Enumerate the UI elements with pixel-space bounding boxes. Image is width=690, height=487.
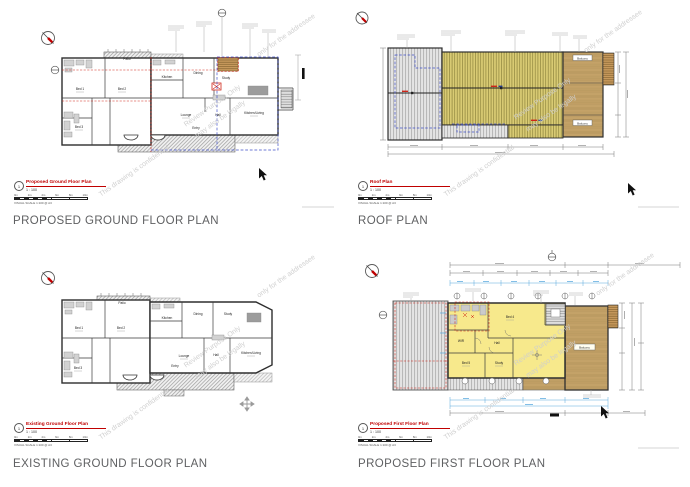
svg-text:Bed 2: Bed 2 [117,326,126,330]
scale-bar: 0m2m4m6m8m10m [14,436,88,442]
visual-scale-note: VISUAL SCALE 1:100 @ A3 [358,201,450,205]
scale-bar: 0m2m4m6m8m10m [358,436,432,442]
svg-text:Entry: Entry [192,126,200,130]
view-title-block: 1 Proposed Ground Floor Plan 1 : 100 0m2… [14,180,106,205]
north-arrow-icon [42,32,55,45]
balcony-label-top: Balcony [573,55,592,61]
svg-text:Hall: Hall [213,353,219,357]
scale-marker [550,414,559,417]
scale-tick: 2m [28,194,32,197]
scale-tick: 8m [69,436,73,439]
panel-proposed-ground-floor-plan: Bed 1 Bed 2 Bed 3 Kitchen Dining Study L… [0,0,345,243]
balcony-label: Balcony [574,344,595,350]
scale-tick: 4m [41,194,45,197]
scale-tick: 6m [55,194,59,197]
visual-scale-note: VISUAL SCALE 1:100 @ A3 [14,443,106,447]
visual-scale-note: VISUAL SCALE 1:100 @ A3 [14,201,106,205]
view-title-block: 1 Existing Ground Floor Plan 1 : 100 0m2… [14,422,106,447]
svg-text:Bed 4: Bed 4 [506,315,515,319]
scale-tick: 2m [372,194,376,197]
view-number-bubble: 1 [14,423,24,433]
scale-tick: 6m [399,436,403,439]
svg-text:Bed 5: Bed 5 [462,361,471,365]
scale-tick: 10m [83,436,88,439]
svg-text:Balcony: Balcony [577,121,588,125]
caption-proposed-first-floor-plan: PROPOSED FIRST FLOOR PLAN [358,458,545,470]
svg-text:Bed 3: Bed 3 [74,366,83,370]
proposed-ground-floor-plan-drawing: Bed 1 Bed 2 Bed 3 Kitchen Dining Study L… [0,0,345,243]
stair-hatch [603,53,614,85]
svg-text:Balcony: Balcony [579,346,590,350]
section-marker-icon [51,66,59,74]
veranda-hatch [234,373,272,382]
scale-marker [302,68,305,79]
dimension-lines-bottom [450,410,645,416]
scale-bar: 0m2m4m6m8m10m [14,194,88,200]
roof-below-area [448,378,523,390]
svg-text:Bed 2: Bed 2 [118,87,127,91]
svg-text:Hall: Hall [494,341,500,345]
ridge-node [500,87,502,89]
stair-hatch [608,305,618,328]
new-roof-area [442,52,563,125]
svg-text:Dining: Dining [193,71,202,75]
svg-text:Patio: Patio [123,57,130,61]
section-marker-icon [548,250,556,261]
scale-tick: 10m [427,436,432,439]
view-scale: 1 : 100 [370,186,450,192]
svg-text:Lounge: Lounge [181,113,192,117]
roof-plan-drawing: Balcony Balcony [345,0,690,243]
move-cursor [240,397,254,411]
scale-tick: 10m [427,194,432,197]
house-right-wing [150,302,272,373]
view-scale: 1 : 100 [370,428,450,434]
scale-tick: 0m [14,194,18,197]
pergola-posts [108,49,148,52]
grid-bubbles [454,293,595,299]
dimension-lines [295,55,301,100]
dimension-lines-blue-top [450,280,608,286]
pergola-posts [101,293,141,296]
north-arrow-icon [366,265,379,278]
proposed-first-floor-plan-drawing: Balcony Bed 4 WIR Hall Bed 5 Study [345,243,690,487]
view-number-bubble: 1 [358,423,368,433]
scale-tick: 6m [399,194,403,197]
scale-tick: 6m [55,436,59,439]
new-roof-area [508,125,563,138]
scale-tick: 8m [413,194,417,197]
caption-proposed-ground-floor-plan: PROPOSED GROUND FLOOR PLAN [13,215,219,227]
visual-scale-note: VISUAL SCALE 1:100 @ A3 [358,443,450,447]
scale-bar: 0m2m4m6m8m10m [358,194,432,200]
section-marker-icon [379,311,387,319]
svg-text:Balcony: Balcony [577,56,588,60]
scale-tick: 10m [83,194,88,197]
stair-landing [551,309,560,317]
svg-text:Kitchen: Kitchen [162,75,173,79]
caption-existing-ground-floor-plan: EXISTING GROUND FLOOR PLAN [13,458,207,470]
balcony-label-bottom: Balcony [573,120,592,126]
view-scale: 1 : 100 [26,428,106,434]
existing-roof-area [442,125,508,138]
view-number-bubble: 1 [14,181,24,191]
svg-text:Lounge: Lounge [179,354,190,358]
svg-text:Dining: Dining [193,312,202,316]
dimension-lines-top [450,262,680,276]
scale-tick: 0m [14,436,18,439]
dimension-lines-blue-bottom [450,397,608,409]
view-title-block: 1 Roof Plan 1 : 100 0m2m4m6m8m10m VISUAL… [358,180,450,205]
view-scale: 1 : 100 [26,186,106,192]
section-marker-icon [218,9,226,56]
svg-text:WIR: WIR [458,339,465,343]
dimension-text-mimic [625,311,635,346]
ridge-node [411,92,413,94]
north-arrow-icon [356,12,368,24]
svg-text:Bed 1: Bed 1 [76,87,85,91]
view-title-block: 1 Proposed First Floor Plan 1 : 100 0m2m… [358,422,450,447]
scale-tick: 4m [385,194,389,197]
mouse-cursor [628,183,636,196]
panel-roof-plan: Balcony Balcony This drawing is confiden… [345,0,690,243]
svg-text:Bed 1: Bed 1 [75,326,84,330]
scale-tick: 2m [372,436,376,439]
stair-hatch [281,90,292,108]
svg-text:Study: Study [224,312,233,316]
scale-tick: 4m [41,436,45,439]
svg-text:Study: Study [495,361,504,365]
scale-tick: 8m [413,436,417,439]
svg-text:Entry: Entry [171,364,179,368]
scale-tick: 0m [358,194,362,197]
panel-proposed-first-floor-plan: Balcony Bed 4 WIR Hall Bed 5 Study [345,243,690,487]
house-left-wing [62,300,150,383]
svg-text:Study: Study [222,76,231,80]
scale-tick: 8m [69,194,73,197]
view-number-bubble: 1 [358,181,368,191]
new-stair-hatch [218,58,238,71]
svg-text:Hall: Hall [215,113,221,117]
scale-tick: 4m [385,436,389,439]
alarm-marker [212,83,221,90]
svg-text:Kitchen/Living: Kitchen/Living [241,351,261,355]
caption-roof-plan: ROOF PLAN [358,215,428,227]
mouse-cursor [259,168,267,181]
roof-below-area [393,301,448,390]
existing-ground-floor-plan-drawing: Bed 1 Bed 2 Bed 3 Kitchen Dining Study L… [0,243,345,487]
porch-steps [164,390,184,396]
dimension-lines-right [619,303,644,390]
svg-text:Kitchen: Kitchen [162,316,173,320]
svg-text:Bed 3: Bed 3 [75,125,84,129]
north-arrow-icon [42,272,55,285]
house-left-wing [62,58,151,145]
svg-text:Patio: Patio [118,301,125,305]
scale-tick: 2m [28,436,32,439]
svg-text:Kitchen/Living: Kitchen/Living [244,111,264,115]
scale-tick: 0m [358,436,362,439]
panel-existing-ground-floor-plan: Bed 1 Bed 2 Bed 3 Kitchen Dining Study L… [0,243,345,487]
